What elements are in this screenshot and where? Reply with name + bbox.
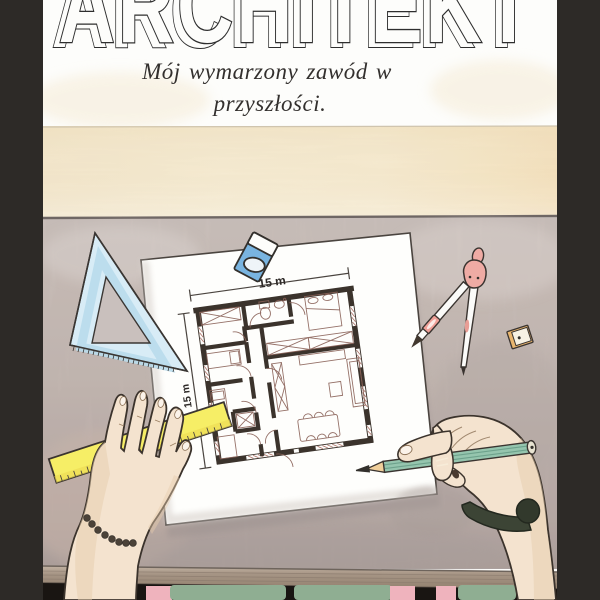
svg-text:ARCHITEKT: ARCHITEKT [59, 0, 536, 65]
svg-text:przyszłości.: przyszłości. [212, 91, 327, 116]
svg-text:Mój wymarzony zawód w: Mój wymarzony zawód w [141, 59, 392, 84]
